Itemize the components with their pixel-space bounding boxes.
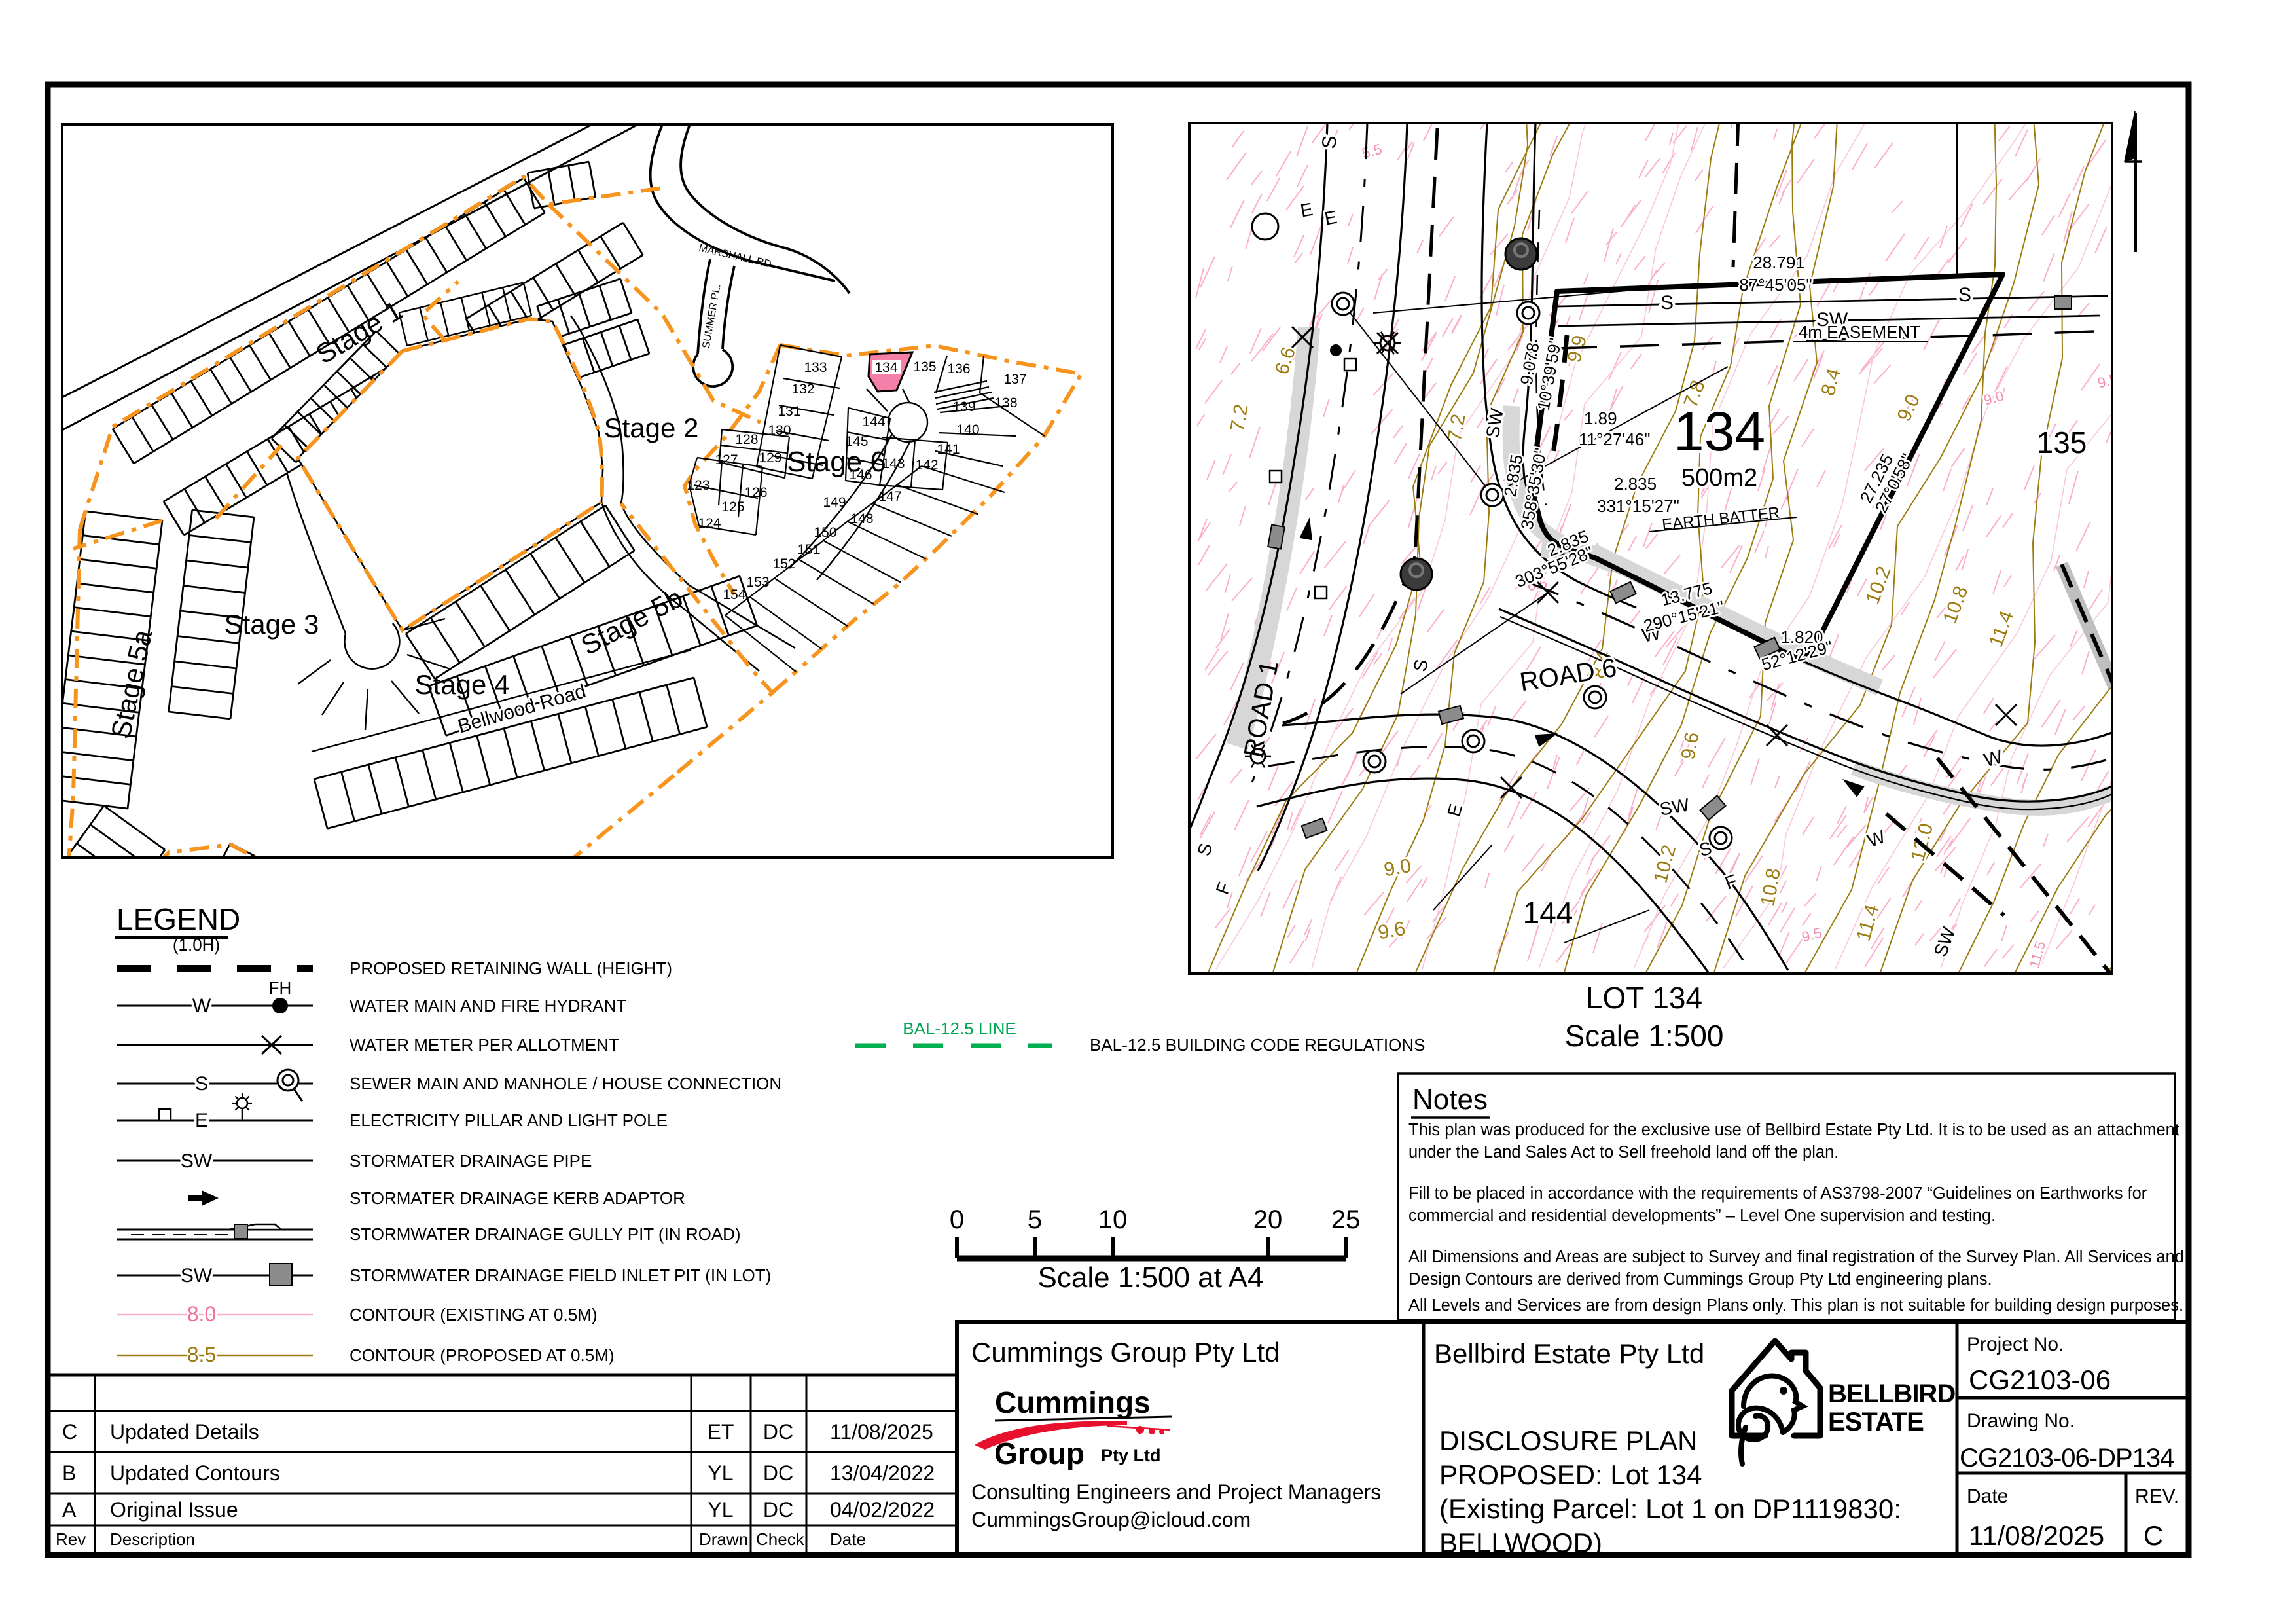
svg-text:87°45'05": 87°45'05" [1739, 275, 1812, 295]
svg-text:SEWER MAIN AND MANHOLE / HOUSE: SEWER MAIN AND MANHOLE / HOUSE CONNECTIO… [350, 1074, 781, 1093]
svg-text:139: 139 [952, 399, 975, 414]
svg-text:Description: Description [110, 1529, 195, 1549]
svg-text:Notes: Notes [1412, 1084, 1488, 1116]
svg-text:8.5: 8.5 [187, 1343, 216, 1366]
svg-text:CummingsGroup@icloud.com: CummingsGroup@icloud.com [971, 1508, 1251, 1531]
svg-text:CONTOUR (PROPOSED AT 0.5M): CONTOUR (PROPOSED AT 0.5M) [350, 1345, 615, 1365]
svg-text:REV.: REV. [2135, 1486, 2179, 1507]
svg-text:11/08/2025: 11/08/2025 [1969, 1520, 2104, 1551]
svg-text:S: S [1958, 284, 1971, 306]
svg-text:Pty Ltd: Pty Ltd [1101, 1446, 1161, 1465]
svg-text:149: 149 [823, 495, 846, 510]
svg-text:140: 140 [956, 422, 979, 437]
svg-text:148: 148 [850, 511, 873, 526]
svg-text:(1.0H): (1.0H) [173, 935, 220, 955]
svg-text:This plan was produced for the: This plan was produced for the exclusive… [1408, 1121, 2179, 1139]
svg-text:Cummings: Cummings [995, 1385, 1151, 1419]
svg-text:S: S [195, 1073, 208, 1095]
svg-text:135: 135 [2037, 426, 2087, 460]
svg-text:130: 130 [768, 423, 791, 438]
svg-text:DC: DC [763, 1498, 793, 1522]
svg-text:STORMATER DRAINAGE PIPE: STORMATER DRAINAGE PIPE [350, 1151, 592, 1171]
svg-text:28.791: 28.791 [1753, 253, 1805, 272]
svg-text:150: 150 [814, 525, 836, 540]
svg-text:142: 142 [915, 458, 938, 473]
svg-text:DISCLOSURE PLAN: DISCLOSURE PLAN [1439, 1425, 1697, 1456]
svg-text:125: 125 [721, 500, 744, 515]
svg-text:DC: DC [763, 1420, 793, 1444]
svg-text:Check: Check [756, 1529, 805, 1549]
svg-text:20: 20 [1253, 1205, 1283, 1234]
svg-text:BELLWOOD): BELLWOOD) [1439, 1527, 1602, 1558]
svg-text:STORMWATER DRAINAGE FIELD INLE: STORMWATER DRAINAGE FIELD INLET PIT (IN … [350, 1266, 771, 1285]
svg-text:YL: YL [708, 1461, 733, 1485]
svg-text:BAL-12.5 LINE: BAL-12.5 LINE [903, 1019, 1016, 1038]
svg-text:CONTOUR (EXISTING AT 0.5M): CONTOUR (EXISTING AT 0.5M) [350, 1305, 598, 1324]
svg-text:Date: Date [1967, 1486, 2008, 1507]
svg-text:All Levels and Services are fr: All Levels and Services are from design … [1408, 1296, 2183, 1315]
svg-text:128: 128 [735, 432, 758, 447]
svg-text:YL: YL [708, 1498, 733, 1522]
svg-text:S: S [1318, 135, 1341, 150]
svg-text:Bellbird Estate Pty Ltd: Bellbird Estate Pty Ltd [1434, 1338, 1704, 1369]
svg-text:151: 151 [797, 542, 820, 557]
svg-text:PROPOSED: Lot 134: PROPOSED: Lot 134 [1439, 1459, 1702, 1490]
svg-text:132: 132 [791, 382, 814, 397]
svg-text:129: 129 [759, 450, 781, 465]
svg-text:331°15'27": 331°15'27" [1597, 496, 1679, 516]
svg-text:FH: FH [269, 978, 292, 998]
svg-text:Design Contours are derived fr: Design Contours are derived from Cumming… [1408, 1270, 1992, 1288]
svg-text:11°27'46": 11°27'46" [1579, 429, 1650, 449]
svg-text:C: C [62, 1420, 77, 1444]
svg-text:Updated Contours: Updated Contours [110, 1461, 280, 1485]
svg-text:126: 126 [744, 485, 767, 500]
svg-text:under the Land Sales Act to Se: under the Land Sales Act to Sell freehol… [1408, 1143, 1839, 1161]
svg-text:CG2103-06: CG2103-06 [1969, 1364, 2111, 1395]
svg-text:LEGEND: LEGEND [117, 902, 240, 936]
svg-text:E: E [195, 1110, 208, 1131]
svg-text:141: 141 [937, 442, 960, 457]
svg-text:134: 134 [1674, 401, 1765, 462]
svg-text:Scale 1:500 at A4: Scale 1:500 at A4 [1038, 1262, 1264, 1294]
svg-text:13/04/2022: 13/04/2022 [830, 1461, 935, 1485]
svg-text:All Dimensions and Areas are s: All Dimensions and Areas are subject to … [1408, 1248, 2184, 1266]
svg-text:147: 147 [878, 489, 901, 504]
svg-text:Stage 6: Stage 6 [787, 446, 886, 478]
svg-text:STORMWATER DRAINAGE GULLY PIT: STORMWATER DRAINAGE GULLY PIT (IN ROAD) [350, 1224, 741, 1244]
svg-text:Cummings Group Pty Ltd: Cummings Group Pty Ltd [971, 1337, 1280, 1368]
svg-text:BELLBIRD: BELLBIRD [1828, 1379, 1955, 1408]
svg-text:B: B [62, 1461, 76, 1485]
svg-text:Date: Date [830, 1529, 866, 1549]
svg-text:Drawing No.: Drawing No. [1967, 1410, 2075, 1432]
svg-text:WATER METER PER ALLOTMENT: WATER METER PER ALLOTMENT [350, 1035, 619, 1055]
svg-text:138: 138 [994, 395, 1017, 410]
svg-text:136: 136 [947, 361, 970, 376]
svg-text:500m2: 500m2 [1681, 464, 1757, 492]
svg-text:152: 152 [772, 556, 795, 572]
svg-text:S: S [1660, 292, 1674, 314]
svg-text:4m EASEMENT: 4m EASEMENT [1799, 322, 1920, 342]
svg-text:ESTATE: ESTATE [1828, 1408, 1924, 1436]
svg-text:Scale 1:500: Scale 1:500 [1565, 1019, 1724, 1053]
svg-text:Drawn: Drawn [699, 1529, 748, 1549]
svg-text:ET: ET [708, 1420, 734, 1444]
svg-text:Stage 3: Stage 3 [224, 609, 319, 640]
svg-text:commercial and residential dev: commercial and residential developments”… [1408, 1207, 1996, 1225]
svg-text:0: 0 [950, 1205, 964, 1234]
svg-text:WATER MAIN AND FIRE HYDRANT: WATER MAIN AND FIRE HYDRANT [350, 996, 626, 1015]
svg-text:A: A [62, 1498, 77, 1522]
svg-text:W: W [192, 995, 211, 1017]
svg-text:CG2103-06-DP134: CG2103-06-DP134 [1960, 1444, 2174, 1472]
svg-text:PROPOSED RETAINING WALL (HEIGH: PROPOSED RETAINING WALL (HEIGHT) [350, 958, 672, 978]
svg-text:Stage 4: Stage 4 [415, 669, 510, 700]
svg-text:Project No.: Project No. [1967, 1334, 2064, 1355]
svg-text:154: 154 [723, 587, 745, 602]
svg-text:Rev: Rev [56, 1529, 86, 1549]
svg-text:133: 133 [804, 360, 827, 375]
svg-text:10: 10 [1098, 1205, 1128, 1234]
svg-text:SW: SW [181, 1265, 213, 1286]
svg-text:04/02/2022: 04/02/2022 [830, 1498, 935, 1522]
svg-text:BAL-12.5 BUILDING CODE REGULAT: BAL-12.5 BUILDING CODE REGULATIONS [1090, 1035, 1425, 1055]
svg-text:Group: Group [994, 1436, 1085, 1470]
svg-text:144: 144 [1523, 896, 1573, 930]
svg-text:Updated Details: Updated Details [110, 1420, 259, 1444]
svg-text:STORMATER DRAINAGE KERB ADAPTO: STORMATER DRAINAGE KERB ADAPTOR [350, 1188, 685, 1208]
svg-text:Original Issue: Original Issue [110, 1498, 238, 1522]
svg-text:134: 134 [874, 360, 897, 375]
svg-text:SW: SW [181, 1150, 213, 1172]
svg-text:137: 137 [1003, 372, 1026, 387]
svg-text:C: C [2144, 1520, 2163, 1551]
svg-text:Stage 2: Stage 2 [604, 412, 699, 443]
svg-text:135: 135 [913, 359, 936, 374]
svg-text:(Existing Parcel: Lot 1 on DP1: (Existing Parcel: Lot 1 on DP1119830: [1439, 1493, 1901, 1524]
svg-text:LOT 134: LOT 134 [1586, 981, 1702, 1015]
svg-text:5: 5 [1028, 1205, 1042, 1234]
svg-text:25: 25 [1331, 1205, 1361, 1234]
svg-text:127: 127 [715, 452, 738, 467]
svg-text:2.835: 2.835 [1614, 474, 1657, 494]
svg-text:144: 144 [862, 414, 885, 429]
svg-text:Consulting Engineers and Proje: Consulting Engineers and Project Manager… [971, 1480, 1381, 1504]
svg-text:ELECTRICITY PILLAR AND LIGHT P: ELECTRICITY PILLAR AND LIGHT POLE [350, 1110, 668, 1130]
svg-text:DC: DC [763, 1461, 793, 1485]
svg-text:11/08/2025: 11/08/2025 [830, 1420, 933, 1444]
svg-text:153: 153 [746, 575, 769, 590]
svg-text:Fill to be placed in accordanc: Fill to be placed in accordance with the… [1408, 1184, 2147, 1203]
svg-text:8.0: 8.0 [187, 1302, 216, 1326]
svg-text:1.89: 1.89 [1584, 409, 1617, 428]
svg-text:131: 131 [778, 404, 800, 419]
svg-text:123: 123 [687, 478, 709, 493]
svg-text:124: 124 [698, 516, 721, 531]
